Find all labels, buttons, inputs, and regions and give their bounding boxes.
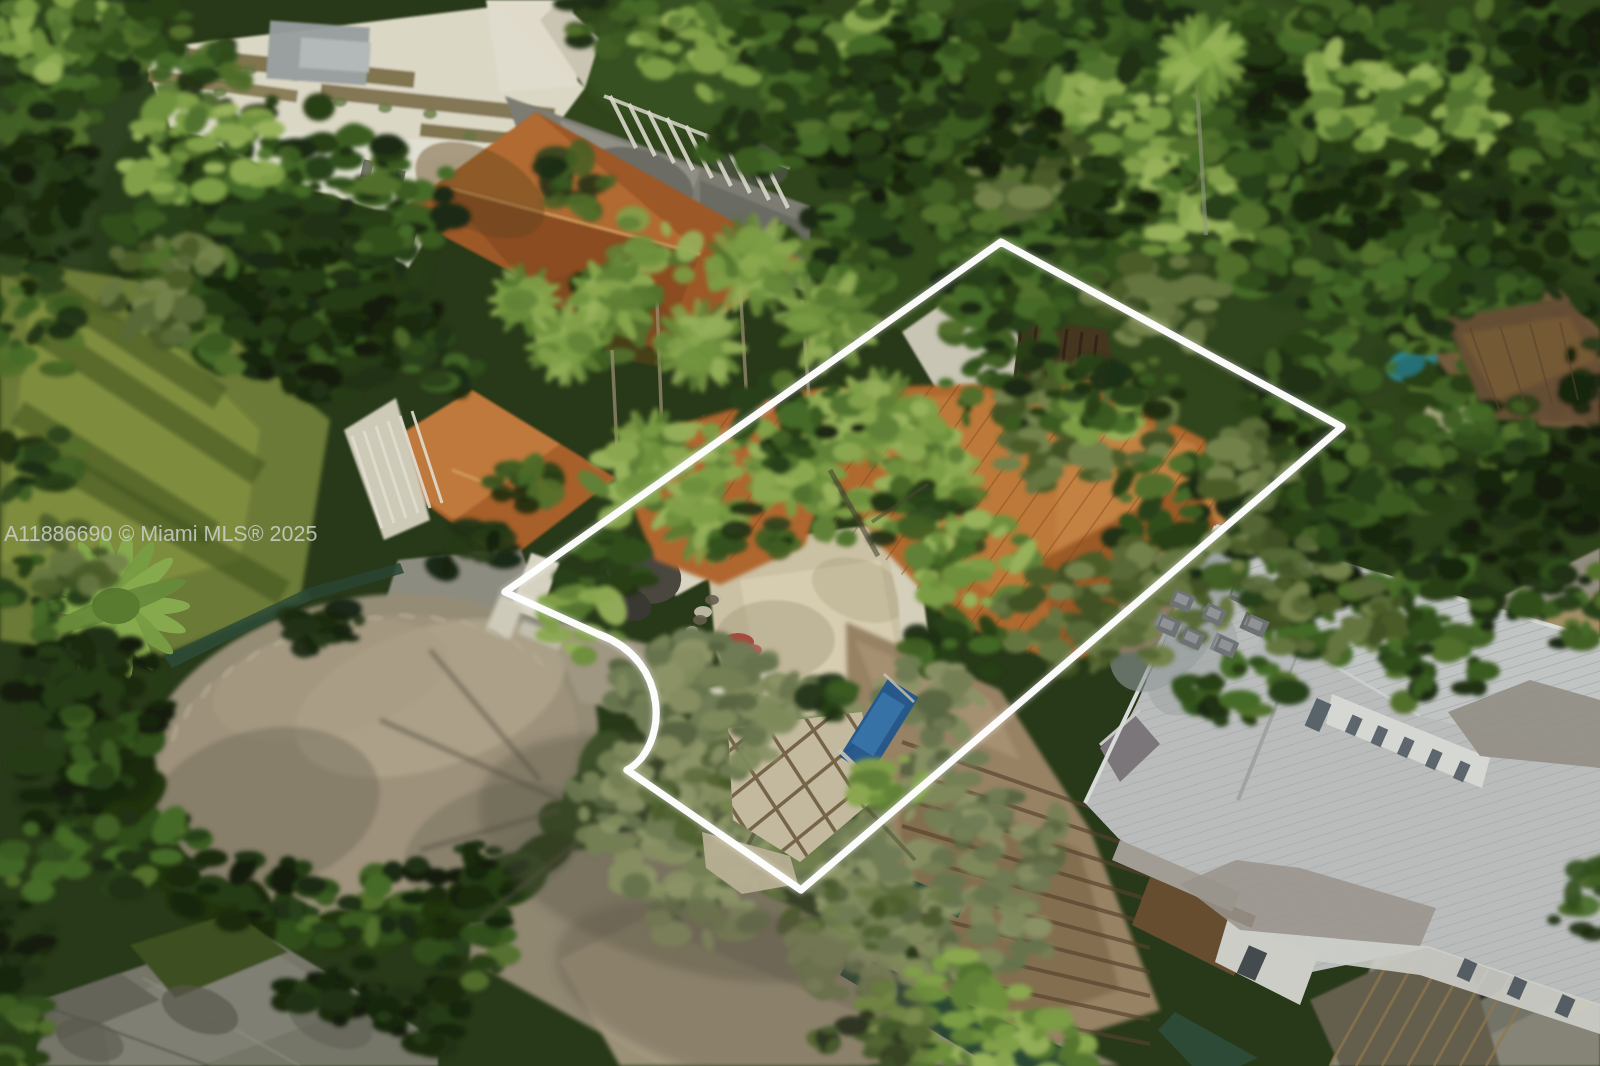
svg-text:A11886690 © Miami MLS® 2025: A11886690 © Miami MLS® 2025 — [4, 522, 317, 546]
